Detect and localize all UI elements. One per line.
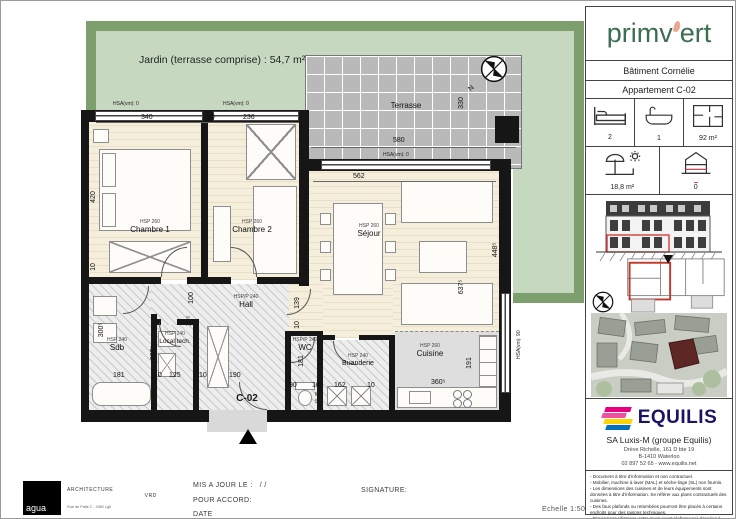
dim: 10 [199,372,207,380]
brand-text-left: primv [607,18,673,49]
location-media [586,195,732,399]
north-compass-icon [475,50,513,88]
stat-bathrooms: 1 [635,99,684,146]
dim: 340 [141,114,153,122]
dim: 191 [466,350,474,376]
stat-area: 92 m² [684,99,732,146]
updated-label: MIS A JOUR LE : / / [193,482,267,489]
chair [385,241,396,253]
stats-row-1: 2 1 92 m² [586,99,732,147]
equilis-logo-icon [601,407,632,430]
room-label-sdb: HSP 240Sdb [101,337,133,352]
room-label-hall: HSP/P 240Hall [225,294,267,309]
dim-terrace-depth: 330 [458,90,466,116]
sink [93,296,117,316]
building-name: Bâtiment Cornélie [586,61,732,81]
dim: 420 [90,184,98,210]
dim: 162 [334,382,346,390]
stat-bedrooms: 2 [586,99,635,146]
dim: 125 [169,372,181,380]
floor-keyplan-image [618,253,730,320]
note-line: - Les dimensions des cuisines et de leur… [590,486,728,504]
room-label-sejour: HSP 260Séjour [339,223,399,238]
dim-line [96,122,299,123]
stat-level: 0 [660,147,733,194]
hall-closet [207,326,229,388]
bathtub [92,382,151,406]
stat-terrace: 18,8 m² [586,147,660,194]
chair [385,269,396,281]
entrance-arrow-icon [239,429,257,444]
chair [320,213,331,225]
site-map-image [591,313,727,399]
dim: 90 [289,382,297,390]
room-label-terrasse: Terrasse [379,101,433,110]
wall-segment [299,110,309,286]
dining-table [333,203,383,295]
dim: 360⁵ [431,379,446,387]
dim: 637⁵ [458,274,466,300]
dim: 10 [154,372,162,380]
wall-segment [81,110,89,422]
dim-line [311,147,516,148]
window-sejour-side [501,293,510,393]
nightstand [93,129,109,143]
sofa-bottom [401,283,493,325]
dim: 190 [229,372,241,380]
coffee-table [419,241,467,273]
wall-partition [187,277,231,284]
room-label-wc: HSP/P 240WC [292,337,318,352]
cuisine-sejour-dashed-line [395,331,499,332]
architect-logo-text: agua [26,503,46,513]
wardrobe-chambre2 [246,124,296,180]
apartment-name: Appartement C-02 [586,81,732,99]
room-label-localtech: HSP 240Local tech. [156,331,194,346]
brand-text-right: ert [680,18,712,49]
window-height-label: HSA(vm): 90 [516,319,522,359]
room-label-chambre1: HSP 260Chambre 1 [117,219,183,234]
scale-label: Echelle 1:50 [542,506,585,513]
wall-partition [359,335,393,340]
dim: 448⁵ [492,237,500,263]
wall-segment [81,410,511,422]
wall-partition [323,335,335,340]
sofa-top [401,181,493,223]
bed-icon [592,105,628,132]
wall-segment [495,116,519,143]
cooktop-burner [463,390,472,399]
window-height-label: HSA(vm): 0 [223,101,249,107]
drawing-sheet: Jardin (terrasse comprise) : 54,7 m² Ter… [0,0,736,519]
cooktop-burner [463,399,472,408]
desk-chambre2 [213,206,231,262]
developer-address-line1: Drève Richelle, 161 D bte 19 [586,447,732,454]
chair [320,241,331,253]
equilis-logo-text: EQUILIS [638,407,718,429]
window-height-label: HSA(vm): 0 [383,152,409,158]
building-section-icon [679,151,713,180]
architect-info: ARCHITECTURE VRD Rue de Palle 2 - 1380 L… [67,487,157,509]
developer-address-line3: 02 897 52 65 - www.equilis.net [586,461,732,468]
updated-value: / / [260,482,267,489]
cooktop-burner [453,399,462,408]
window-chambre2 [213,111,299,121]
wall-partition [89,277,161,284]
cooktop-burner [453,390,462,399]
dim-terrace-width: 580 [393,137,405,145]
dim: 10 [90,254,98,280]
bed-pillow [102,193,116,227]
dim-line [313,181,496,182]
developer-address-line2: B-1410 Waterloo [586,454,732,461]
architect-line2: VRD [67,493,157,499]
wall-partition [201,122,208,279]
signature-label: SIGNATURE: [361,487,407,494]
kitchen-sink [409,391,431,404]
architect-line3: Rue de Palle 2 - 1380 Lgh [67,505,157,509]
chair [320,269,331,281]
wall-partition [257,277,301,284]
fridge-column [479,335,497,387]
bathtub-icon [643,104,675,133]
floorplan-icon [691,104,725,133]
entrance-opening [209,410,267,422]
window-height-label: HSA(vm): 0 [113,101,139,107]
approval-label: POUR ACCORD: [193,497,252,504]
room-label-cuisine: HSP 260Cuisine [401,343,459,358]
dim: 10 [367,382,375,390]
window-sejour [321,160,491,170]
developer-block: EQUILIS SA Luxis-M (groupe Equilis) Drèv… [586,399,732,471]
stats-row-2: 18,8 m² 0 [586,147,732,195]
garden-label: Jardin (terrasse comprise) : 54,7 m² [139,54,305,66]
dim: 10 [312,382,320,390]
toilet-bowl [298,390,312,406]
dim: 181 [113,372,125,380]
room-label-buanderie: HSP 240Buanderie [329,353,387,368]
bed-pillow [102,153,116,187]
architect-logo: agua [23,481,61,515]
room-label-chambre2: HSP 260Chambre 2 [221,219,283,234]
wall-partition [389,335,395,410]
date-label: DATE [193,511,213,518]
developer-entity: SA Luxis-M (groupe Equilis) [586,435,732,445]
apartment-entrance-label: C-02 [219,393,275,404]
entrance-porch [207,422,267,432]
dim: 236 [243,114,255,122]
garden-area-right [513,117,584,303]
dim: 562 [353,173,365,181]
terrace-umbrella-icon [602,151,642,182]
dim: 10 [207,114,215,122]
dim: 10 [294,312,302,338]
brand-logo: primvert [586,7,732,61]
title-sidebar: primvert Bâtiment Cornélie Appartement C… [585,6,733,515]
note-line: - Des faux plafonds ou retombées pourron… [590,504,728,516]
legal-notes: - Document à titre d'information et non … [586,471,732,512]
